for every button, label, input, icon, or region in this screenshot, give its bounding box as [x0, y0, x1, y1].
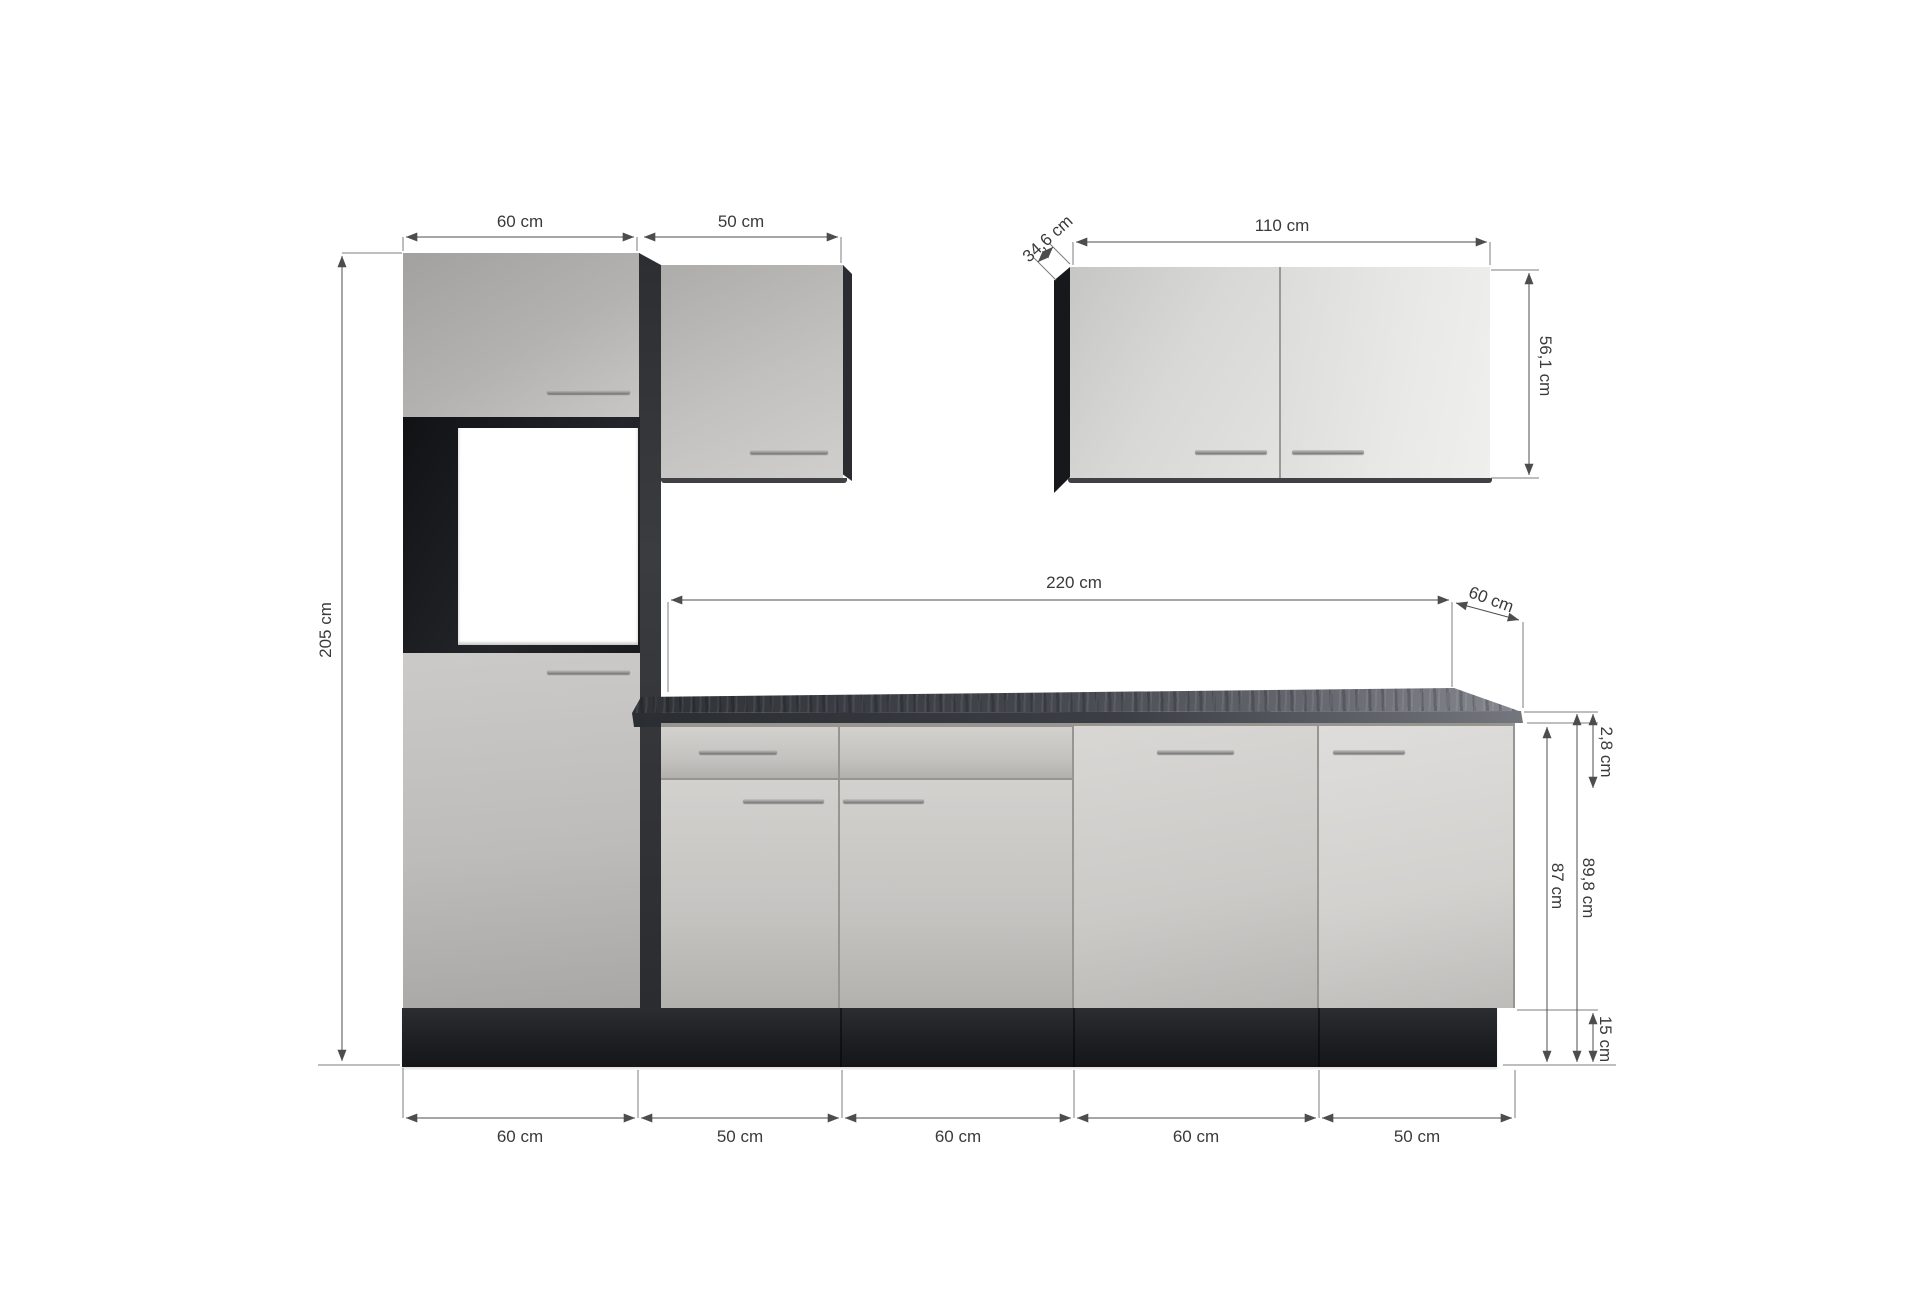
extension-lines	[318, 237, 1616, 1118]
label-worktop-thickness: 2,8 cm	[1596, 726, 1616, 777]
kitchen-dimension-diagram: 60 cm 50 cm 110 cm 34,6 cm 56,1 cm 220 c…	[0, 0, 1920, 1307]
label-worktop-length: 220 cm	[1046, 573, 1102, 593]
label-base-unit-height: 87 cm	[1547, 863, 1567, 909]
label-wall-cabinet-small-width: 50 cm	[718, 212, 764, 232]
label-height-with-worktop: 89,8 cm	[1578, 858, 1598, 918]
label-base-segment-5: 50 cm	[1394, 1127, 1440, 1147]
label-base-segment-4: 60 cm	[1173, 1127, 1219, 1147]
dimension-lines-layer	[0, 0, 1920, 1307]
label-base-segment-3: 60 cm	[935, 1127, 981, 1147]
label-plinth-height: 15 cm	[1595, 1016, 1615, 1062]
label-wall-cabinet-large-width: 110 cm	[1255, 216, 1310, 236]
label-base-segment-1: 60 cm	[497, 1127, 543, 1147]
dimension-lines	[342, 237, 1593, 1118]
label-total-height: 205 cm	[316, 602, 336, 658]
label-wall-cabinet-large-height: 56,1 cm	[1535, 336, 1555, 396]
label-tall-unit-width: 60 cm	[497, 212, 543, 232]
label-base-segment-2: 50 cm	[717, 1127, 763, 1147]
